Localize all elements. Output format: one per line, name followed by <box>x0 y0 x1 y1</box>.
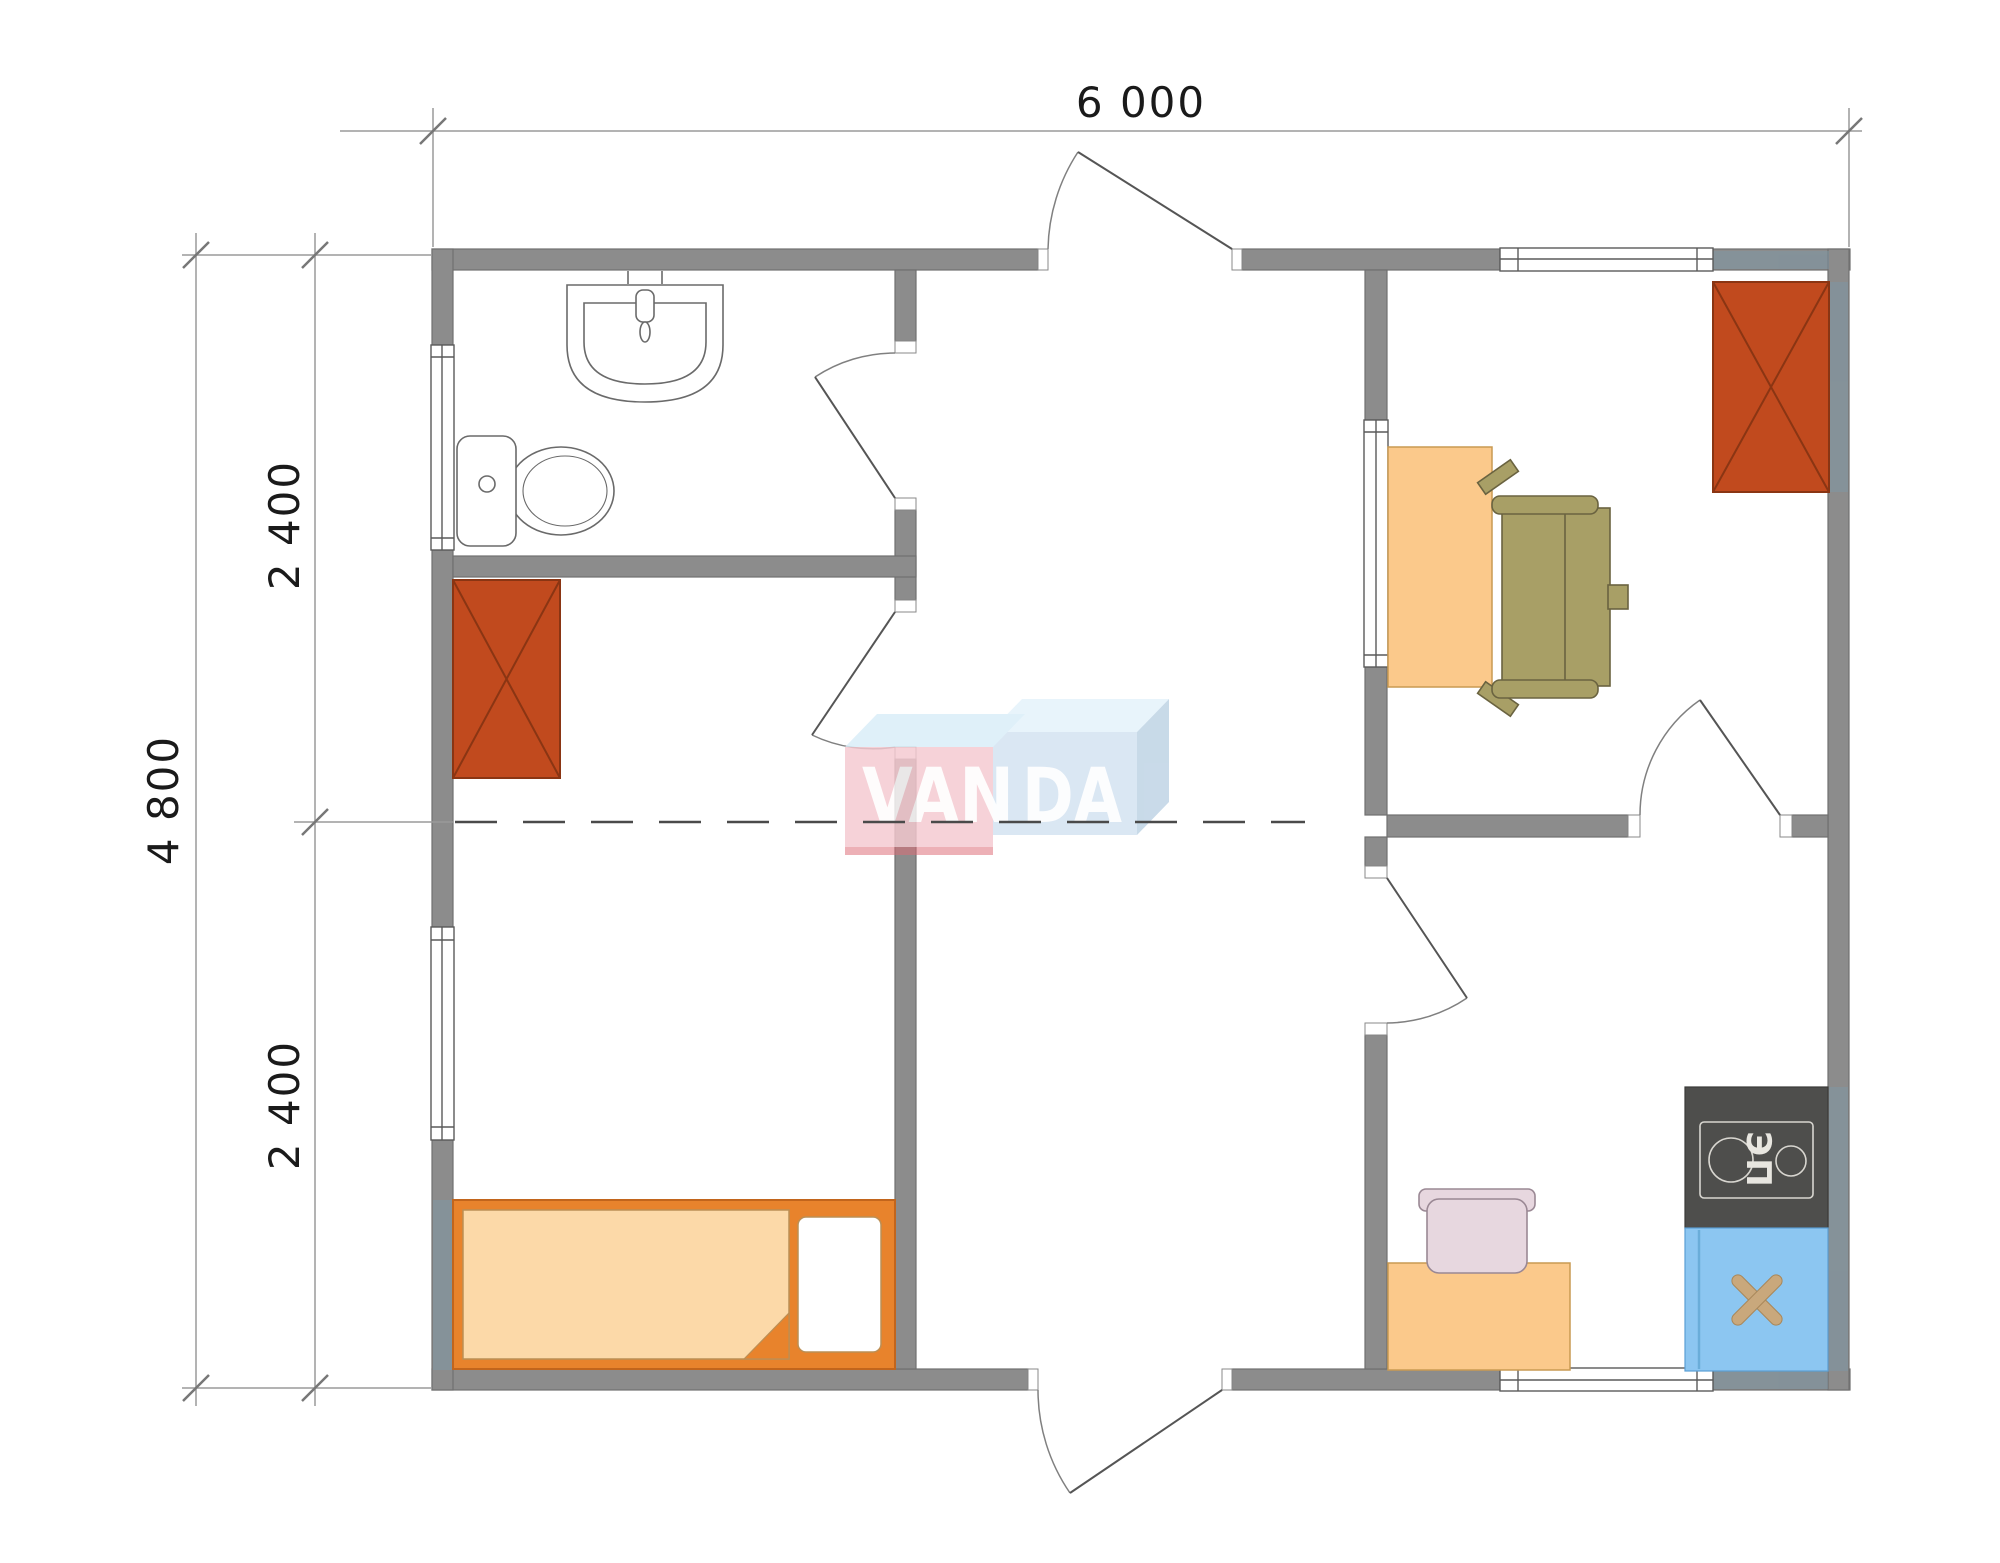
wall-segment <box>1232 1369 1500 1390</box>
dimension-label-lower-segment: 2 400 <box>260 1040 309 1170</box>
kitchen-sink-icon <box>1685 1228 1828 1371</box>
wall-tint <box>1713 251 1829 269</box>
kitchen-door-leaf <box>1387 878 1467 998</box>
door-jamb <box>1628 815 1640 837</box>
door-jamb <box>1780 815 1792 837</box>
door-swing-arc <box>1038 1390 1070 1493</box>
bed-icon <box>453 1200 895 1369</box>
door-jamb <box>895 600 916 612</box>
window-bedroom <box>431 927 454 1140</box>
door-jamb <box>895 341 916 353</box>
dimension-label-upper-segment: 2 400 <box>260 460 309 590</box>
stove-label: ЭП <box>1738 1131 1778 1188</box>
door-swing-arc <box>815 353 895 377</box>
door-jamb <box>1222 1369 1232 1390</box>
wall-segment <box>1365 1035 1387 1369</box>
bed-pillow <box>798 1217 881 1352</box>
office-door-leaf <box>1700 700 1780 815</box>
window-bathroom <box>431 345 454 550</box>
wall-segment <box>1365 270 1387 420</box>
wall-tint <box>1829 1087 1848 1371</box>
door-jamb <box>1038 249 1048 270</box>
door-swing-arc <box>1640 700 1700 815</box>
toilet-icon <box>457 436 614 546</box>
door-swing-arc <box>1387 998 1467 1023</box>
wardrobe-left <box>453 580 560 778</box>
office-chair-icon <box>1478 460 1628 716</box>
bed-mattress <box>463 1210 789 1359</box>
entrance-door-top-leaf <box>1078 152 1232 249</box>
vanda-watermark-logo: VAN DA <box>845 699 1169 855</box>
bathroom-sink-icon <box>567 271 723 402</box>
wall-segment <box>432 249 1038 270</box>
electric-stove-icon: ЭП <box>1685 1087 1828 1228</box>
wall-segment <box>895 270 916 341</box>
wall-segment <box>1365 667 1387 815</box>
window-office-top <box>1500 248 1713 271</box>
door-jamb <box>1365 1023 1387 1035</box>
wall-segment <box>432 249 453 345</box>
floor-plan-canvas: ЭП VAN DA <box>0 0 2000 1563</box>
kitchen-desk <box>1388 1263 1570 1370</box>
wall-segment <box>1792 815 1828 837</box>
wall-segment <box>1242 249 1500 270</box>
door-jamb <box>1232 249 1242 270</box>
door-jamb <box>895 498 916 510</box>
wall-segment <box>1387 815 1628 837</box>
logo-text-da: DA <box>1022 751 1122 840</box>
bathroom-door-leaf <box>815 377 895 498</box>
wall-segment <box>453 556 916 577</box>
window-office-interior <box>1364 420 1388 667</box>
floor-plan-drawing: ЭП VAN DA <box>0 0 2000 1563</box>
wall-tint <box>1829 282 1848 492</box>
wall-segment <box>1365 837 1387 866</box>
wall-segment <box>432 1369 1028 1390</box>
dimension-label-height-total: 4 800 <box>139 735 188 865</box>
logo-text-van: VAN <box>862 751 1014 840</box>
window-kitchen-bottom <box>1500 1368 1713 1391</box>
door-jamb <box>1365 866 1387 878</box>
door-jamb <box>1028 1369 1038 1390</box>
door-swing-arc <box>1048 152 1078 249</box>
entrance-door-bottom-leaf <box>1070 1390 1222 1493</box>
wall-segment <box>895 510 916 600</box>
wardrobe-right <box>1713 282 1829 492</box>
wall-segment <box>432 550 453 927</box>
wall-tint <box>433 1200 453 1370</box>
kitchen-chair-icon <box>1419 1189 1535 1273</box>
dimension-label-width: 6 000 <box>1076 78 1206 127</box>
office-desk <box>1388 447 1492 687</box>
